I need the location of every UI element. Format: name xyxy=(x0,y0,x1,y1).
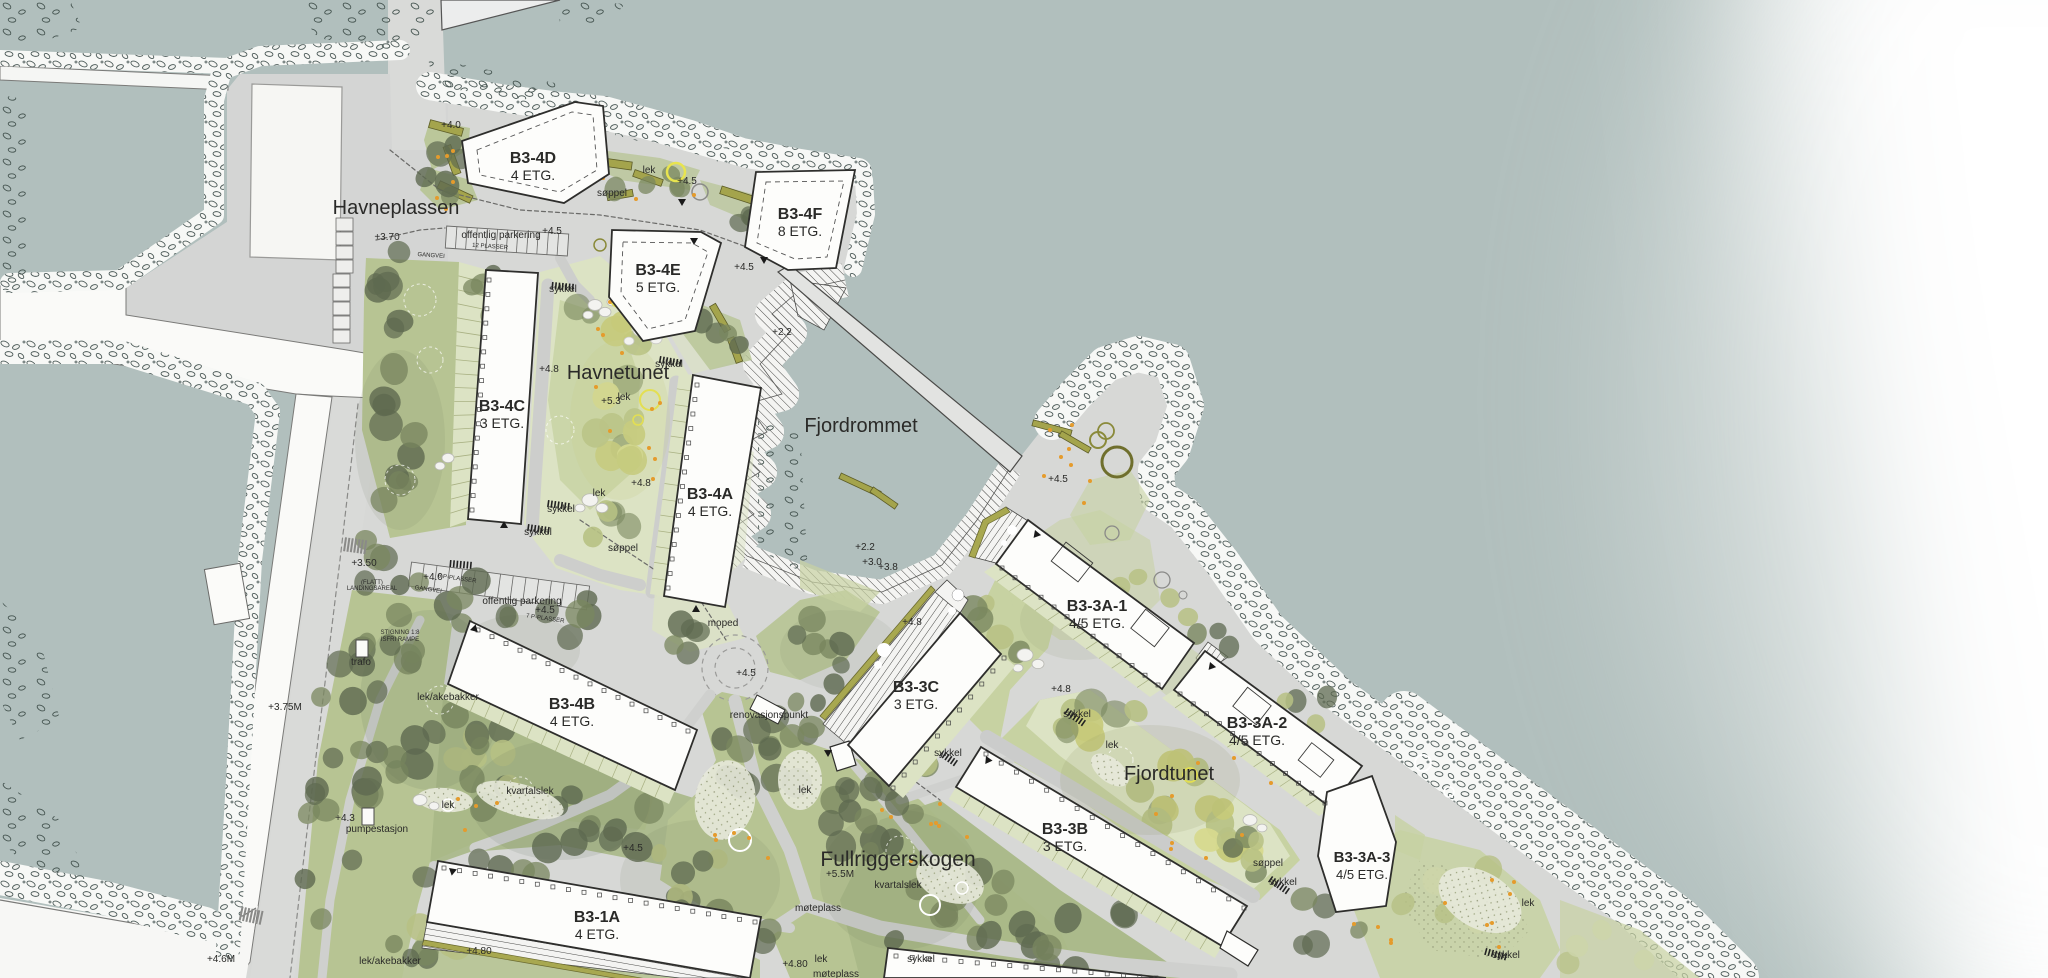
svg-text:Fullriggerskogen: Fullriggerskogen xyxy=(820,848,975,871)
svg-text:lek: lek xyxy=(1106,740,1120,751)
svg-text:+2.2: +2.2 xyxy=(772,327,792,338)
svg-text:B3-4D: B3-4D xyxy=(510,150,556,167)
svg-text:+4.8: +4.8 xyxy=(631,478,651,489)
svg-text:lek: lek xyxy=(643,165,657,176)
svg-text:lek/akebakker: lek/akebakker xyxy=(417,692,479,703)
svg-text:+5.3: +5.3 xyxy=(601,396,621,407)
svg-text:4 ETG.: 4 ETG. xyxy=(688,503,732,519)
svg-text:B3-4E: B3-4E xyxy=(635,262,681,279)
svg-text:B3-4B: B3-4B xyxy=(549,696,595,713)
svg-text:sykkel: sykkel xyxy=(524,527,552,538)
svg-text:4/5 ETG.: 4/5 ETG. xyxy=(1069,615,1125,631)
svg-text:+4.8: +4.8 xyxy=(902,617,922,628)
svg-text:sykkel: sykkel xyxy=(547,504,575,515)
svg-text:renovasjonspunkt: renovasjonspunkt xyxy=(730,710,809,721)
svg-text:+4.0: +4.0 xyxy=(441,120,461,131)
svg-text:+4.5: +4.5 xyxy=(1048,474,1068,485)
svg-text:+4.80: +4.80 xyxy=(466,946,492,957)
svg-text:sykkel: sykkel xyxy=(655,359,683,370)
svg-text:søppel: søppel xyxy=(1253,858,1283,869)
svg-text:lek: lek xyxy=(593,488,607,499)
svg-text:+4.6M: +4.6M xyxy=(207,954,235,965)
svg-text:B3-4F: B3-4F xyxy=(778,206,823,223)
svg-text:+4.5: +4.5 xyxy=(736,668,756,679)
svg-text:+4.8: +4.8 xyxy=(1051,684,1071,695)
svg-text:+2.2: +2.2 xyxy=(855,542,875,553)
svg-text:Havneplassen: Havneplassen xyxy=(333,197,460,219)
svg-text:sykkel: sykkel xyxy=(549,284,577,295)
svg-text:B3-4A: B3-4A xyxy=(687,486,734,503)
svg-text:4 ETG.: 4 ETG. xyxy=(575,926,619,942)
svg-text:4/5 ETG.: 4/5 ETG. xyxy=(1229,732,1285,748)
svg-text:8 ETG.: 8 ETG. xyxy=(778,223,822,239)
svg-text:+3.70: +3.70 xyxy=(374,232,400,243)
svg-text:sykkel: sykkel xyxy=(1063,709,1091,720)
svg-text:lek: lek xyxy=(815,954,829,965)
svg-text:4/5 ETG.: 4/5 ETG. xyxy=(1336,867,1388,882)
svg-text:sykkel: sykkel xyxy=(934,748,962,759)
svg-text:pumpestasjon: pumpestasjon xyxy=(346,824,408,835)
svg-text:+3.50: +3.50 xyxy=(351,558,377,569)
svg-text:møteplass: møteplass xyxy=(795,903,841,914)
svg-text:4 ETG.: 4 ETG. xyxy=(511,167,555,183)
svg-text:søppel: søppel xyxy=(597,188,627,199)
svg-text:lek/akebakker: lek/akebakker xyxy=(359,956,421,967)
svg-text:5 ETG.: 5 ETG. xyxy=(636,279,680,295)
svg-text:lek: lek xyxy=(1522,898,1536,909)
svg-text:sykkel: sykkel xyxy=(907,954,935,965)
svg-text:STIGNING 1:8: STIGNING 1:8 xyxy=(380,630,420,636)
svg-text:sykkel: sykkel xyxy=(1492,950,1520,961)
svg-text:3 ETG.: 3 ETG. xyxy=(1043,838,1087,854)
svg-text:kvartalslek: kvartalslek xyxy=(874,880,922,891)
svg-text:3 ETG.: 3 ETG. xyxy=(480,415,524,431)
svg-text:B3-4C: B3-4C xyxy=(479,398,526,415)
svg-text:trafo: trafo xyxy=(351,657,371,668)
svg-text:Fjordrommet: Fjordrommet xyxy=(804,415,918,437)
svg-text:B3-3C: B3-3C xyxy=(893,679,940,696)
svg-text:moped: moped xyxy=(708,618,739,629)
svg-text:søppel: søppel xyxy=(608,543,638,554)
svg-text:offentlig parkering: offentlig parkering xyxy=(461,230,540,241)
svg-text:ISFRI RAMPE: ISFRI RAMPE xyxy=(381,637,419,643)
svg-text:B3-3B: B3-3B xyxy=(1042,821,1088,838)
svg-text:+5.5M: +5.5M xyxy=(826,869,854,880)
svg-text:lek: lek xyxy=(799,785,813,796)
svg-text:+4.5: +4.5 xyxy=(734,262,754,273)
svg-text:+3.75M: +3.75M xyxy=(268,702,302,713)
svg-text:lek: lek xyxy=(442,800,456,811)
svg-text:4 ETG.: 4 ETG. xyxy=(550,713,594,729)
svg-text:LANDINGSAREAL: LANDINGSAREAL xyxy=(347,586,398,592)
svg-text:møteplass: møteplass xyxy=(813,969,859,978)
svg-text:sykkel: sykkel xyxy=(1269,877,1297,888)
svg-text:B3-3A-1: B3-3A-1 xyxy=(1067,598,1128,615)
svg-text:+4.5: +4.5 xyxy=(542,226,562,237)
svg-text:kvartalslek: kvartalslek xyxy=(506,786,554,797)
svg-text:3 ETG.: 3 ETG. xyxy=(894,696,938,712)
svg-text:+4.80: +4.80 xyxy=(782,959,808,970)
svg-text:Fjordtunet: Fjordtunet xyxy=(1124,763,1214,785)
svg-text:+4.5: +4.5 xyxy=(677,176,697,187)
svg-text:+3.8: +3.8 xyxy=(878,562,898,573)
svg-text:B3-1A: B3-1A xyxy=(574,909,621,926)
svg-text:B3-3A-3: B3-3A-3 xyxy=(1334,849,1391,866)
svg-text:+4.5: +4.5 xyxy=(623,843,643,854)
svg-text:+4.8: +4.8 xyxy=(539,364,559,375)
svg-text:+4.3: +4.3 xyxy=(335,813,355,824)
